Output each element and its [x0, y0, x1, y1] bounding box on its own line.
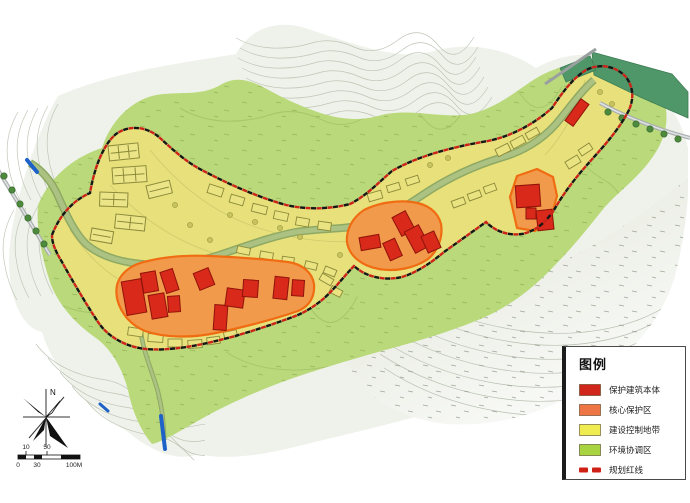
legend-label: 环境协调区 [609, 444, 652, 456]
scale-label-30: 30 [33, 462, 41, 469]
legend-item-planning-redline: 规划红线 [579, 460, 685, 480]
north-label: N [50, 388, 56, 397]
legend-item-protected-building: 保护建筑本体 [579, 380, 685, 400]
scale-bar: 10 50 0 30 100M [16, 444, 82, 469]
scale-label-0: 0 [16, 462, 20, 469]
compass-rose: N [23, 388, 70, 448]
legend-swatch-construction-control [579, 424, 601, 436]
legend-swatch-environment-coordination [579, 444, 601, 456]
legend-item-core-protection: 核心保护区 [579, 400, 685, 420]
legend-label: 保护建筑本体 [609, 384, 660, 396]
legend-item-environment-coordination: 环境协调区 [579, 440, 685, 460]
legend-label: 建设控制地带 [609, 424, 660, 436]
legend-swatch-planning-redline [579, 464, 601, 476]
scale-label-50: 50 [43, 444, 51, 451]
map-canvas: N 10 50 0 30 100M 图例 保护建筑本体 核心保护区 建设控制地带 [0, 0, 690, 503]
legend-item-construction-control: 建设控制地带 [579, 420, 685, 440]
legend-title: 图例 [579, 354, 685, 373]
legend: 图例 保护建筑本体 核心保护区 建设控制地带 环境协调区 规划红线 [562, 346, 686, 480]
legend-label: 规划红线 [609, 464, 643, 476]
scale-label-10: 10 [22, 444, 30, 451]
scale-label-100m: 100M [66, 462, 82, 469]
legend-label: 核心保护区 [609, 404, 652, 416]
legend-swatch-protected-building [579, 384, 601, 396]
legend-swatch-core-protection [579, 404, 601, 416]
